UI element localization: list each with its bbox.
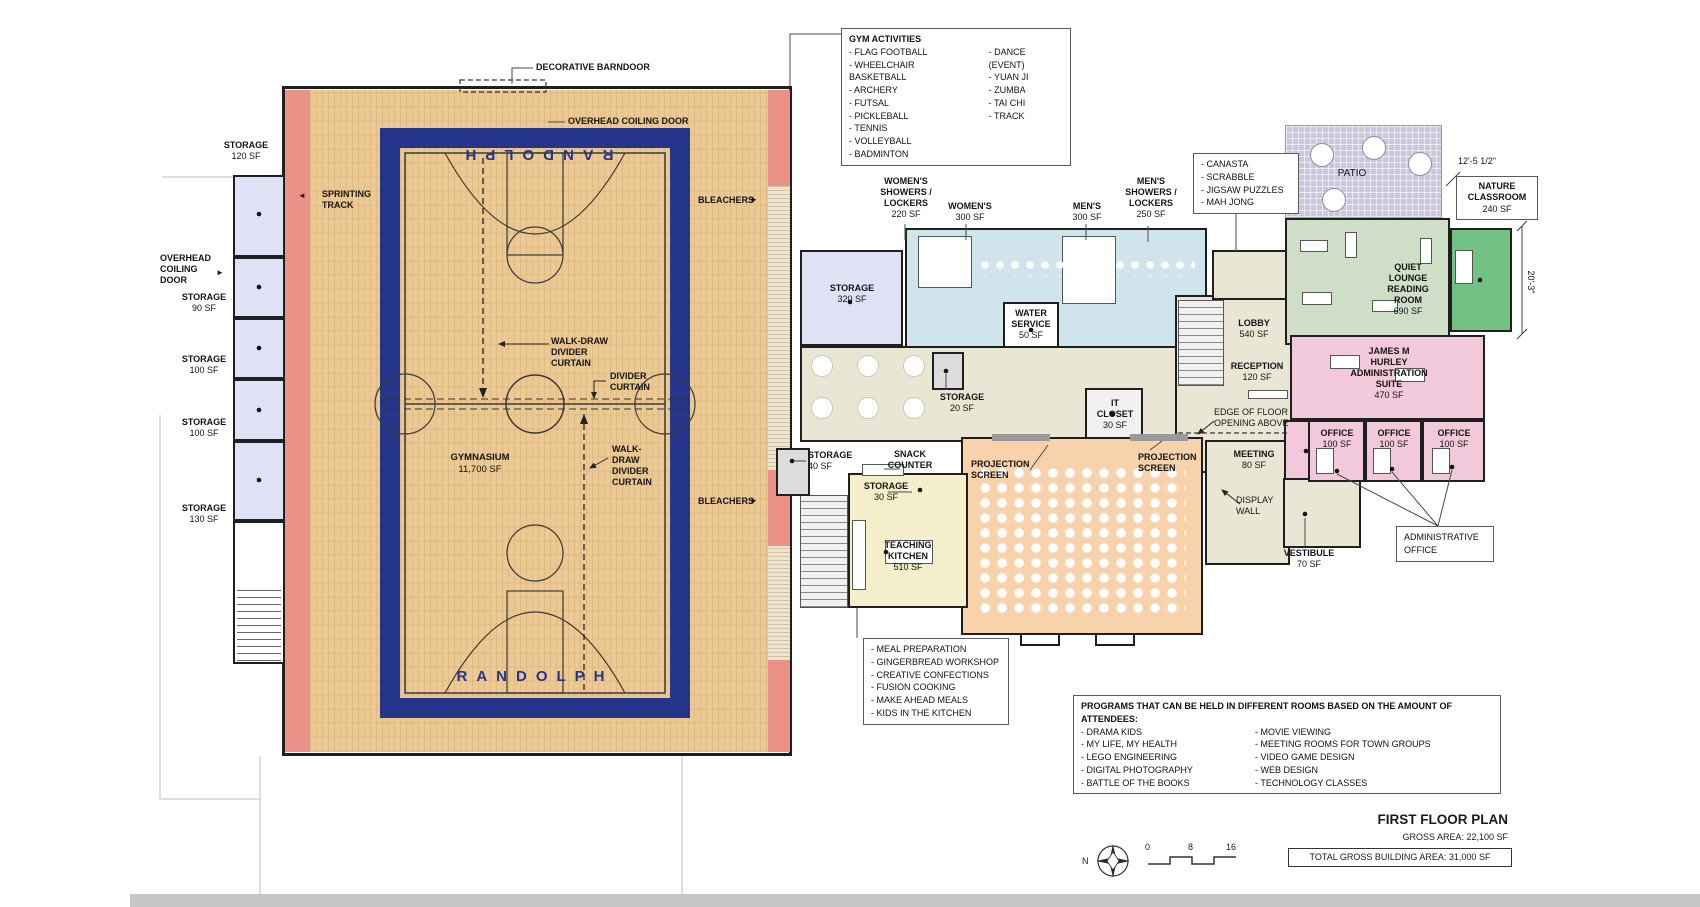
list-item: - TECHNOLOGY CLASSES	[1255, 777, 1431, 790]
label-office-1: OFFICE100 SF	[1312, 428, 1362, 450]
scale-tick-16: 16	[1226, 842, 1236, 852]
list-item: - ZUMBA	[989, 84, 1063, 97]
label-meeting: MEETING80 SF	[1226, 449, 1282, 471]
label-overhead-coiling-left: OVERHEAD COILING DOOR	[160, 253, 214, 286]
note-kitchen-programs: - MEAL PREPARATION- GINGERBREAD WORKSHOP…	[863, 638, 1009, 725]
label-quiet-lounge: QUIET LOUNGE READING ROOM690 SF	[1378, 262, 1438, 317]
scale-bar	[1148, 857, 1236, 864]
list-item: - FUSION COOKING	[871, 681, 1001, 694]
label-storage-30: STORAGE30 SF	[862, 481, 910, 503]
label-gymnasium: GYMNASIUM11,700 SF	[430, 452, 530, 475]
list-item: - FLAG FOOTBALL	[849, 46, 973, 59]
list-item: - WHEELCHAIR BASKETBALL	[849, 59, 973, 85]
gym-activities-col2: - DANCE (EVENT)- YUAN JI- ZUMBA- TAI CHI…	[989, 46, 1063, 161]
plan-total-area: TOTAL GROSS BUILDING AREA: 31,000 SF	[1288, 848, 1512, 867]
court-name-top: RANDOLPH	[385, 146, 685, 163]
list-item: - ARCHERY	[849, 84, 973, 97]
list-item: - TRACK	[989, 110, 1063, 123]
list-item: - CANASTA	[1201, 158, 1291, 171]
list-item: - BADMINTON	[849, 148, 973, 161]
label-water-service: WATER SERVICE50 SF	[1005, 308, 1057, 341]
kitchen-programs-list: - MEAL PREPARATION- GINGERBREAD WORKSHOP…	[871, 643, 1001, 720]
list-item: - MY LIFE, MY HEALTH	[1081, 738, 1239, 751]
list-item: - DIGITAL PHOTOGRAPHY	[1081, 764, 1239, 777]
arrow-right-icon: ►	[216, 268, 224, 277]
list-item: - DRAMA KIDS	[1081, 726, 1239, 739]
label-projection-screen-right: PROJECTION SCREEN	[1138, 452, 1202, 474]
list-item: - VIDEO GAME DESIGN	[1255, 751, 1431, 764]
label-womens-showers: WOMEN'S SHOWERS / LOCKERS220 SF	[874, 176, 938, 220]
label-office-2: OFFICE100 SF	[1369, 428, 1419, 450]
label-nature-classroom: NATURE CLASSROOM 240 SF	[1456, 176, 1538, 220]
label-edge-of-floor: EDGE OF FLOOR OPENING ABOVE	[1214, 407, 1294, 429]
label-projection-screen-left: PROJECTION SCREEN	[971, 459, 1035, 481]
label-mens-showers: MEN'S SHOWERS / LOCKERS250 SF	[1120, 176, 1182, 220]
label-display-wall: DISPLAY WALL	[1236, 495, 1286, 517]
lounge-games-list: - CANASTA- SCRABBLE- JIGSAW PUZZLES- MAH…	[1201, 158, 1291, 209]
list-item: - VOLLEYBALL	[849, 135, 973, 148]
label-walk-draw-curtain-1: WALK-DRAW DIVIDER CURTAIN	[551, 336, 643, 369]
label-divider-curtain: DIVIDER CURTAIN	[610, 371, 656, 393]
scale-tick-0: 0	[1145, 842, 1150, 852]
label-admin-suite: JAMES M HURLEY ADMINISTRATION SUITE470 S…	[1340, 346, 1438, 401]
list-item: - YUAN JI	[989, 71, 1063, 84]
label-storage-100a: STORAGE100 SF	[176, 354, 232, 376]
list-item: - LEGO ENGINEERING	[1081, 751, 1239, 764]
label-patio: PATIO	[1328, 168, 1376, 180]
plan-title: FIRST FLOOR PLAN	[1308, 812, 1508, 827]
label-teaching-kitchen: TEACHING KITCHEN510 SF	[862, 540, 954, 573]
list-item: - MEETING ROOMS FOR TOWN GROUPS	[1255, 738, 1431, 751]
scale-tick-8: 8	[1188, 842, 1193, 852]
label-womens: WOMEN'S300 SF	[942, 201, 998, 223]
list-item: - TAI CHI	[989, 97, 1063, 110]
list-item: - BATTLE OF THE BOOKS	[1081, 777, 1239, 790]
label-storage-100b: STORAGE100 SF	[176, 417, 232, 439]
list-item: - TENNIS	[849, 122, 973, 135]
label-storage-320: STORAGE320 SF	[818, 283, 886, 305]
list-item: - MAKE AHEAD MEALS	[871, 694, 1001, 707]
label-administrative-office: ADMINISTRATIVE OFFICE	[1396, 526, 1494, 562]
label-bleachers-lower: BLEACHERS	[698, 496, 748, 507]
note-gym-activities: GYM ACTIVITIES - FLAG FOOTBALL- WHEELCHA…	[841, 28, 1071, 166]
dimension-patio-width: 12'-5 1/2"	[1458, 156, 1518, 167]
room-programs-col1: - DRAMA KIDS- MY LIFE, MY HEALTH- LEGO E…	[1081, 726, 1239, 790]
arrow-right-icon: ►	[750, 195, 758, 204]
list-item: - DANCE (EVENT)	[989, 46, 1063, 72]
arrow-right-icon: ►	[750, 496, 758, 505]
note-lounge-games: - CANASTA- SCRABBLE- JIGSAW PUZZLES- MAH…	[1193, 153, 1299, 214]
label-lobby: LOBBY540 SF	[1222, 318, 1286, 340]
list-item: - SCRABBLE	[1201, 171, 1291, 184]
label-snack-counter: SNACK COUNTER	[884, 449, 936, 471]
label-storage-90: STORAGE90 SF	[176, 292, 232, 314]
label-storage-130: STORAGE130 SF	[176, 503, 232, 525]
north-label: N	[1082, 856, 1089, 866]
room-programs-col2: - MOVIE VIEWING- MEETING ROOMS FOR TOWN …	[1255, 726, 1431, 790]
label-bleachers-upper: BLEACHERS	[698, 195, 748, 206]
label-storage-20: STORAGE20 SF	[936, 392, 988, 414]
label-office-3: OFFICE100 SF	[1428, 428, 1480, 450]
list-item: - MOVIE VIEWING	[1255, 726, 1431, 739]
label-sprinting-track: SPRINTING TRACK	[322, 189, 382, 211]
label-storage-120: STORAGE120 SF	[216, 140, 276, 162]
label-it-closet: IT CLOSET30 SF	[1090, 398, 1140, 431]
label-mens: MEN'S300 SF	[1064, 201, 1110, 223]
north-compass	[1096, 844, 1130, 878]
label-overhead-coiling-top: OVERHEAD COILING DOOR	[568, 116, 693, 127]
court-name-bottom: RANDOLPH	[385, 668, 685, 685]
dimension-lounge-depth: 20'-3"	[1525, 262, 1536, 302]
list-item: - PICKLEBALL	[849, 110, 973, 123]
list-item: - WEB DESIGN	[1255, 764, 1431, 777]
list-item: - MEAL PREPARATION	[871, 643, 1001, 656]
label-decorative-barndoor: DECORATIVE BARNDOOR	[536, 62, 656, 73]
note-room-programs: PROGRAMS THAT CAN BE HELD IN DIFFERENT R…	[1073, 695, 1501, 794]
list-item: - CREATIVE CONFECTIONS	[871, 669, 1001, 682]
label-reception: RECEPTION120 SF	[1216, 361, 1298, 383]
list-item: - FUTSAL	[849, 97, 973, 110]
list-item: - JIGSAW PUZZLES	[1201, 184, 1291, 197]
arrow-left-icon: ◄	[298, 191, 306, 200]
list-item: - KIDS IN THE KITCHEN	[871, 707, 1001, 720]
plan-gross-area: GROSS AREA: 22,100 SF	[1308, 832, 1508, 842]
list-item: - MAH JONG	[1201, 196, 1291, 209]
label-storage-40: STORAGE40 SF	[808, 450, 854, 472]
first-floor-plan: RANDOLPH RANDOLPH	[0, 0, 1700, 907]
label-walk-draw-curtain-2: WALK-DRAW DIVIDER CURTAIN	[612, 444, 668, 488]
label-vestibule: VESTIBULE70 SF	[1278, 548, 1340, 570]
list-item: - GINGERBREAD WORKSHOP	[871, 656, 1001, 669]
gym-activities-col1: - FLAG FOOTBALL- WHEELCHAIR BASKETBALL- …	[849, 46, 973, 161]
